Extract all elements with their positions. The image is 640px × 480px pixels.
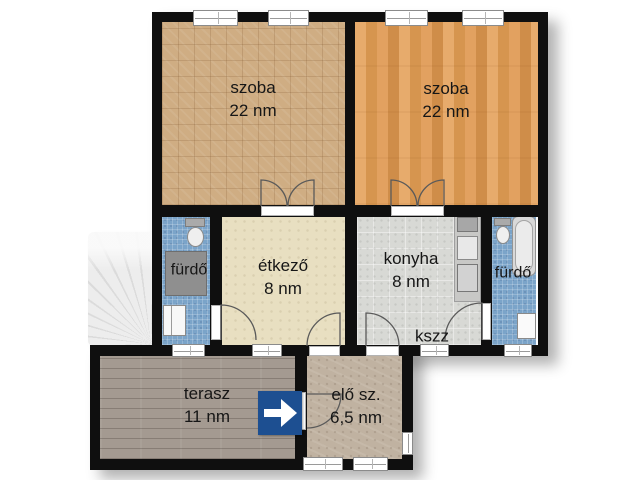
room-label-furdo-left: fürdő <box>171 259 207 282</box>
room-label-szoba-right: szoba 22 nm <box>422 77 469 123</box>
toilet-bowl <box>496 226 510 244</box>
wall-szoba-divider <box>345 12 355 217</box>
sink-divider <box>171 306 172 335</box>
refrigerator <box>457 217 478 232</box>
wall-left <box>152 12 162 356</box>
room-label-szoba-left: szoba 22 nm <box>229 76 276 122</box>
room-name: kszz <box>415 325 449 348</box>
wall-right <box>538 12 548 356</box>
window <box>303 457 343 471</box>
room-name: szoba <box>423 77 468 100</box>
entrance-sign <box>258 391 302 435</box>
sink <box>163 305 186 336</box>
room-label-terasz: terasz 11 nm <box>184 382 230 428</box>
door-threshold <box>309 346 340 356</box>
window <box>193 10 238 26</box>
kitchen-sink <box>457 236 478 260</box>
room-label-furdo-right: fürdő <box>495 262 531 285</box>
stove <box>457 264 478 292</box>
wall-middle-horizontal <box>152 205 548 217</box>
room-name: terasz <box>184 382 230 405</box>
room-area: 6,5 nm <box>330 406 382 429</box>
staircase <box>88 232 152 345</box>
window <box>252 344 282 357</box>
entrance-arrow-icon <box>258 391 302 435</box>
toilet-tank <box>185 218 205 227</box>
door-threshold <box>261 206 314 216</box>
room-area: 22 nm <box>422 100 469 123</box>
window <box>385 10 428 26</box>
door-threshold <box>482 303 491 340</box>
room-label-elo-szoba: elő sz. 6,5 nm <box>330 383 382 429</box>
room-label-etkezo: étkező 8 nm <box>258 254 308 300</box>
toilet-tank <box>494 218 511 226</box>
wall-etkezo-konyha <box>345 217 357 356</box>
floor-plan: szoba 22 nm szoba 22 nm étkező 8 nm kony… <box>0 0 640 480</box>
door-threshold <box>211 305 221 340</box>
window <box>268 10 309 26</box>
room-name: fürdő <box>495 262 531 285</box>
room-area: 8 nm <box>264 277 302 300</box>
window <box>462 10 504 26</box>
room-label-kszz: kszz <box>415 325 449 348</box>
room-area: 22 nm <box>229 99 276 122</box>
window <box>172 344 205 357</box>
window <box>353 457 388 471</box>
room-name: konyha <box>384 247 439 270</box>
room-name: szoba <box>230 76 275 99</box>
room-area: 8 nm <box>392 270 430 293</box>
door-threshold <box>366 346 399 356</box>
room-label-konyha: konyha 8 nm <box>384 247 439 293</box>
wall-terasz-left <box>90 345 100 470</box>
window <box>402 432 413 455</box>
room-name: fürdő <box>171 259 207 282</box>
window <box>504 344 532 357</box>
room-area: 11 nm <box>184 405 230 428</box>
door-threshold <box>391 206 444 216</box>
room-name: elő sz. <box>331 383 380 406</box>
sink <box>517 313 536 339</box>
room-name: étkező <box>258 254 308 277</box>
toilet-bowl <box>187 227 204 247</box>
